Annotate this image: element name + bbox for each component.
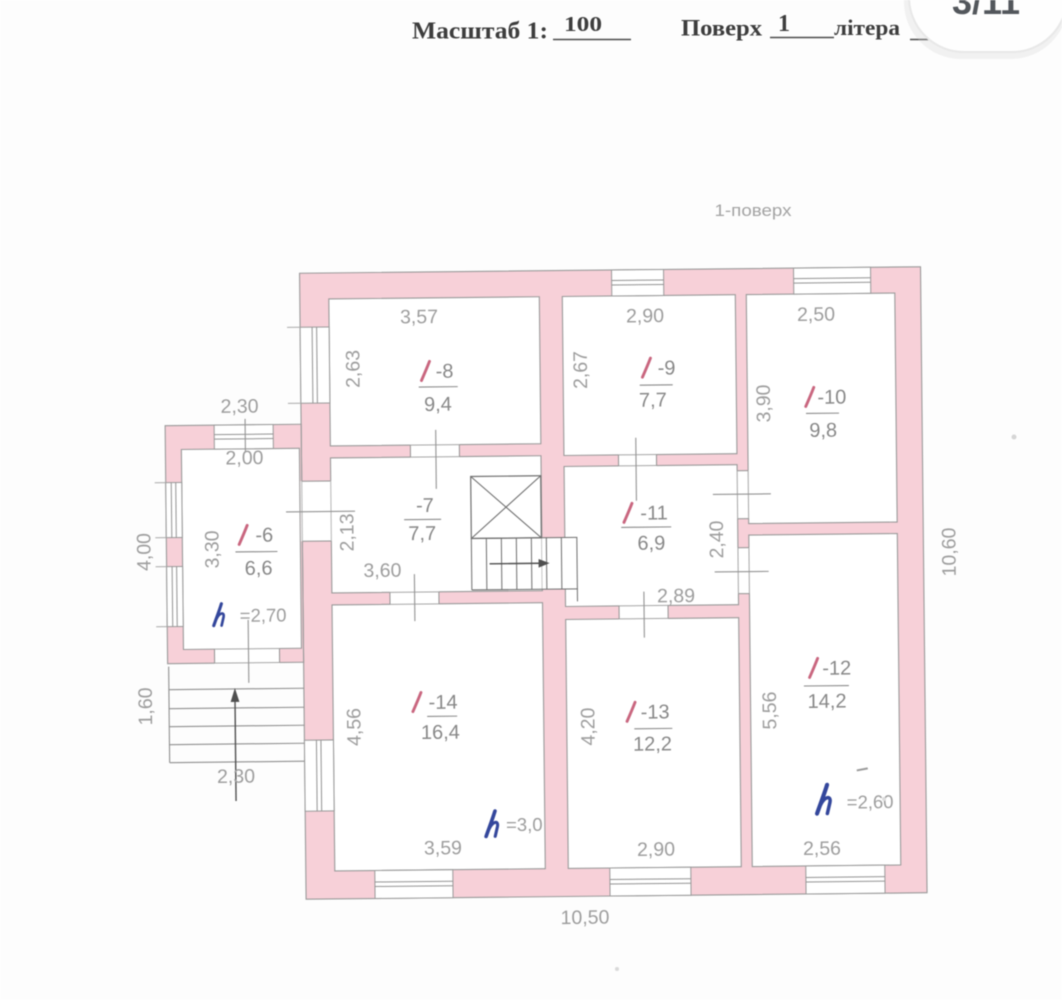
svg-text:10,50: 10,50 bbox=[560, 907, 609, 930]
svg-text:2,90: 2,90 bbox=[626, 305, 664, 327]
svg-text:-6: -6 bbox=[255, 525, 273, 547]
svg-text:2,30: 2,30 bbox=[217, 766, 255, 788]
svg-text:4,00: 4,00 bbox=[133, 533, 155, 571]
svg-text:Поверх: Поверх bbox=[681, 16, 763, 41]
svg-text:2,30: 2,30 bbox=[220, 395, 258, 417]
svg-text:2,90: 2,90 bbox=[637, 839, 675, 861]
svg-text:-12: -12 bbox=[822, 658, 851, 680]
svg-text:=2,70: =2,70 bbox=[240, 604, 287, 625]
svg-text:4,20: 4,20 bbox=[577, 707, 599, 745]
svg-text:2,89: 2,89 bbox=[657, 585, 695, 607]
svg-text:=2,60: =2,60 bbox=[847, 791, 894, 812]
svg-text:16,4: 16,4 bbox=[421, 722, 460, 744]
svg-text:6,9: 6,9 bbox=[637, 532, 665, 554]
svg-text:1: 1 bbox=[778, 11, 790, 37]
svg-text:-9: -9 bbox=[658, 357, 676, 379]
svg-text:-14: -14 bbox=[428, 692, 457, 714]
svg-text:2,50: 2,50 bbox=[797, 304, 835, 326]
svg-text:10,60: 10,60 bbox=[938, 527, 961, 576]
svg-text:9,4: 9,4 bbox=[424, 394, 452, 416]
svg-text:1-поверх: 1-поверх bbox=[715, 201, 793, 220]
svg-text:3,90: 3,90 bbox=[753, 384, 775, 422]
svg-text:2,40: 2,40 bbox=[706, 520, 728, 558]
svg-text:6,6: 6,6 bbox=[245, 558, 273, 580]
svg-text:=3,0: =3,0 bbox=[506, 814, 543, 835]
svg-text:100: 100 bbox=[564, 12, 602, 36]
svg-text:7,7: 7,7 bbox=[408, 523, 436, 545]
svg-text:-8: -8 bbox=[436, 361, 454, 383]
svg-text:3/11: 3/11 bbox=[952, 0, 1020, 22]
svg-text:2,13: 2,13 bbox=[336, 513, 358, 551]
svg-text:2,63: 2,63 bbox=[342, 350, 364, 388]
svg-text:4,56: 4,56 bbox=[343, 708, 365, 746]
svg-text:5,56: 5,56 bbox=[759, 691, 781, 729]
svg-text:-13: -13 bbox=[641, 701, 670, 723]
svg-text:7,7: 7,7 bbox=[639, 389, 667, 411]
svg-text:2,67: 2,67 bbox=[570, 351, 592, 389]
svg-text:2,56: 2,56 bbox=[803, 838, 841, 860]
svg-text:1,60: 1,60 bbox=[135, 687, 157, 725]
svg-text:Масштаб 1:: Масштаб 1: bbox=[412, 18, 548, 45]
svg-text:-11: -11 bbox=[640, 502, 668, 524]
svg-text:літера: літера bbox=[834, 15, 900, 40]
svg-text:3,59: 3,59 bbox=[424, 837, 462, 859]
svg-text:-7: -7 bbox=[416, 495, 434, 517]
svg-text:9,8: 9,8 bbox=[809, 420, 837, 442]
svg-text:-10: -10 bbox=[817, 387, 846, 409]
svg-text:3,30: 3,30 bbox=[201, 530, 223, 568]
svg-text:14,2: 14,2 bbox=[807, 691, 846, 713]
svg-text:3,60: 3,60 bbox=[363, 560, 401, 582]
svg-text:12,2: 12,2 bbox=[633, 733, 672, 755]
svg-text:2,00: 2,00 bbox=[225, 447, 263, 469]
svg-text:3,57: 3,57 bbox=[400, 306, 438, 328]
